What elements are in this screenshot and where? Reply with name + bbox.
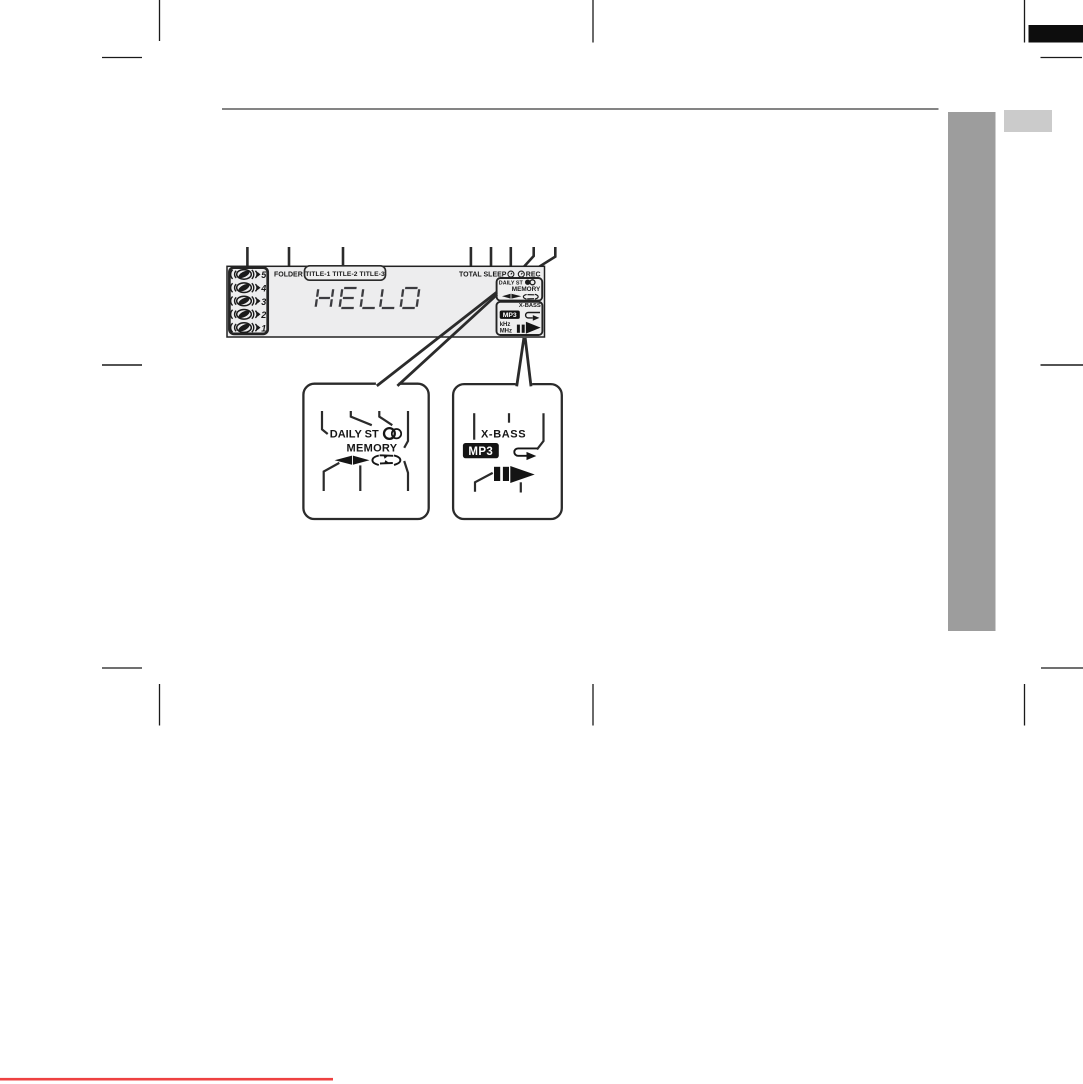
svg-text:3: 3 bbox=[261, 297, 266, 307]
svg-text:2: 2 bbox=[260, 310, 266, 320]
svg-text:4: 4 bbox=[260, 284, 266, 294]
svg-text:1: 1 bbox=[261, 323, 266, 333]
svg-text:MHz: MHz bbox=[500, 329, 512, 335]
svg-text:X-BASS: X-BASS bbox=[481, 429, 526, 441]
svg-text:MP3: MP3 bbox=[503, 312, 517, 319]
svg-text:X-BASS: X-BASS bbox=[519, 303, 541, 309]
svg-text:MP3: MP3 bbox=[468, 446, 493, 458]
svg-text:MEMORY: MEMORY bbox=[512, 286, 541, 293]
svg-text:kHz: kHz bbox=[500, 322, 511, 328]
svg-text:TOTAL: TOTAL bbox=[459, 272, 482, 279]
svg-text:MEMORY: MEMORY bbox=[347, 443, 398, 455]
svg-text:FOLDER: FOLDER bbox=[274, 271, 303, 278]
svg-text:DAILY ST: DAILY ST bbox=[330, 429, 379, 441]
svg-text:TITLE-1 TITLE-2 TITLE-3: TITLE-1 TITLE-2 TITLE-3 bbox=[305, 271, 385, 278]
